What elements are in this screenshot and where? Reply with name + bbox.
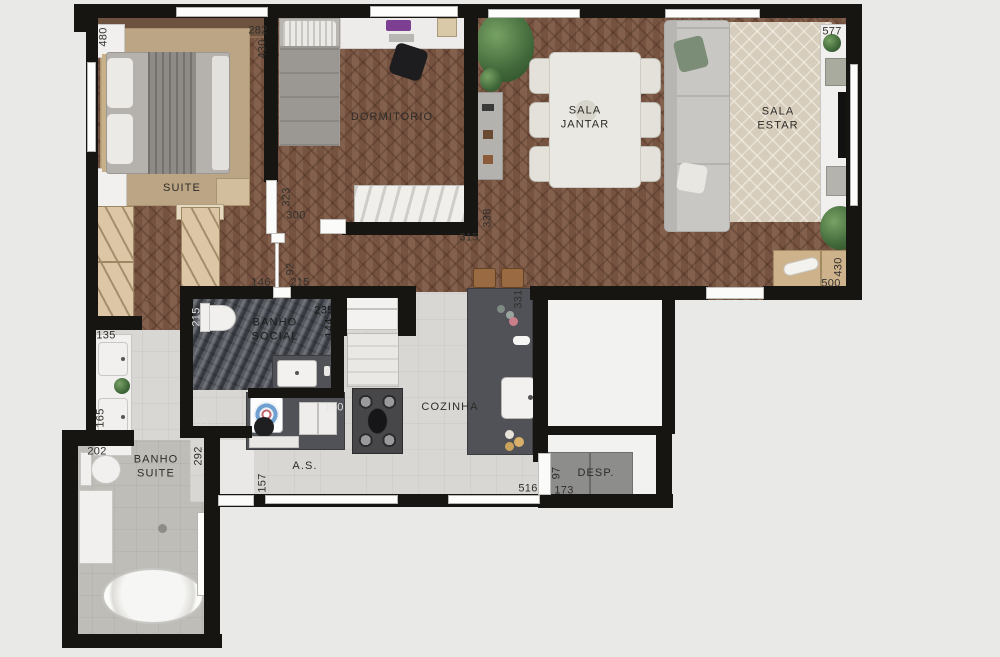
- suite-toilet-bowl: [91, 455, 121, 484]
- dim-estar-cab-b: 500: [821, 279, 840, 290]
- room-label-banho-suite: BANHO SUITE: [134, 453, 179, 481]
- dim-dorm-left-b: 300: [286, 211, 305, 222]
- dim-social-right-b: 144: [325, 318, 336, 337]
- sideboard-decor-1: [482, 104, 494, 111]
- wall-closet-stub: [90, 316, 142, 330]
- dim-hall-right: 215: [290, 278, 309, 289]
- dim-bsuite-right: 292: [194, 446, 205, 465]
- dim-social-right-a: 235: [314, 306, 333, 317]
- dim-suite-right-a: 282: [248, 26, 267, 37]
- closet-wardrobe-divider: [94, 261, 134, 263]
- social-toilet-bowl: [209, 305, 236, 331]
- dim-bsuite-top: 202: [87, 447, 106, 458]
- fruit-2: [514, 437, 524, 447]
- oven-tower: [347, 333, 399, 387]
- jantar-plant-small: [480, 68, 502, 92]
- suite-bath-bench: [79, 490, 113, 564]
- dim-as-tank: 150: [324, 403, 343, 414]
- corridor-door-frame: [271, 233, 285, 243]
- wall-sala-bottom-left: [530, 286, 708, 300]
- condiment-3: [509, 317, 518, 326]
- dim-vanity-a: 135: [96, 331, 115, 342]
- window-suite-left: [87, 62, 96, 152]
- wall-dorm-right: [464, 14, 478, 236]
- kitchen-counter: [467, 288, 533, 455]
- sofa-pillow-white: [676, 162, 708, 194]
- floor-plan: SUITE DORMITORIO SALA JANTAR SALA ESTAR …: [0, 0, 1000, 657]
- vanity-faucet-1: [121, 357, 125, 361]
- dim-kitchen-bottom: 516: [518, 484, 537, 495]
- wall-hall-desp: [543, 426, 663, 435]
- cooktop: [352, 388, 403, 454]
- sideboard-decor-3: [483, 155, 493, 164]
- social-tap-icon: [324, 366, 330, 376]
- wall-kitchen-top: [331, 286, 416, 298]
- dim-vanity-b: 165: [96, 408, 107, 427]
- dim-dorm-bottom: 315: [459, 233, 478, 244]
- desk-printer: [437, 18, 457, 37]
- wall-left-upper: [86, 14, 98, 326]
- suite-nightstand-bottom: [97, 168, 127, 208]
- dim-social-left: 215: [192, 307, 203, 326]
- suite-bed-throw: [148, 52, 196, 174]
- window-kitchen-bottom-2: [448, 495, 540, 504]
- suite-door: [266, 180, 277, 234]
- fruit-3: [505, 442, 514, 451]
- console-books: [825, 58, 847, 86]
- wall-bsuite-bottom: [62, 634, 222, 648]
- wall-kitchen-right: [533, 286, 548, 462]
- dim-suite-right-b: 430: [258, 39, 269, 58]
- dim-suite-left: 480: [99, 27, 110, 46]
- window-jantar-top: [488, 9, 580, 18]
- bar-stool-2: [501, 268, 524, 288]
- corridor-door-leaf: [275, 243, 279, 289]
- room-label-suite: SUITE: [163, 182, 201, 196]
- dim-dorm-right: 338: [483, 208, 494, 227]
- wall-social-laundry: [248, 388, 344, 398]
- laundry-shelf: [249, 436, 299, 448]
- room-label-banho-social: BANHO SOCIAL: [252, 316, 299, 344]
- shower-drain-icon: [158, 524, 167, 533]
- despensa-door: [538, 453, 551, 495]
- dorm-blanket: [280, 46, 339, 146]
- fruit-1: [505, 430, 514, 439]
- room-label-dormitorio: DORMITORIO: [351, 111, 433, 125]
- dim-dorm-left-a: 323: [282, 187, 293, 206]
- dim-desp-door-l: 173: [554, 486, 573, 497]
- laundry-tank-line: [317, 402, 319, 435]
- vanity-plant: [114, 378, 130, 394]
- dim-hall-door: 92: [286, 263, 297, 276]
- refrigerator-door-line: [346, 308, 398, 310]
- suite-bathtub: [102, 568, 204, 624]
- room-label-cozinha: COZINHA: [421, 401, 478, 415]
- social-door: [273, 287, 291, 298]
- suite-dresser: [216, 178, 250, 206]
- entrance-door: [706, 287, 764, 299]
- wall-bsuite-top: [62, 430, 134, 446]
- console-basket: [826, 166, 848, 196]
- window-dorm-top: [370, 6, 458, 17]
- suite-pillow-1: [107, 58, 133, 108]
- desk-pad: [389, 34, 414, 42]
- wall-bsuite-right: [204, 430, 220, 648]
- faucet-icon: [513, 336, 530, 345]
- dim-hall-left: 146: [251, 278, 270, 289]
- dim-kitchen-right: 331: [514, 289, 525, 308]
- window-suite-top: [176, 7, 268, 17]
- dorm-door: [320, 219, 346, 234]
- wall-dorm-bottom: [342, 222, 478, 235]
- wall-hall-right: [662, 296, 675, 434]
- window-kitchen-bottom-1: [265, 495, 398, 504]
- room-label-as: A.S.: [292, 460, 317, 474]
- room-label-despensa: DESP.: [577, 467, 614, 481]
- dim-estar-cab-r: 430: [834, 257, 845, 276]
- sideboard-decor-2: [483, 130, 493, 139]
- dorm-wardrobe: [354, 185, 467, 223]
- window-estar-top: [665, 9, 760, 18]
- laptop-icon: [386, 20, 411, 31]
- laundry-round-sink: [254, 417, 274, 437]
- dim-as-left: 157: [258, 473, 269, 492]
- room-label-sala-jantar: SALA JANTAR: [561, 104, 610, 132]
- closet-wardrobe-right: [181, 207, 220, 289]
- suite-pillow-2: [107, 114, 133, 164]
- dim-social-shower: 85: [196, 418, 209, 429]
- dim-estar-top: 577: [822, 27, 841, 38]
- service-door: [218, 495, 254, 506]
- bar-stool-1: [473, 268, 496, 288]
- wall-bsuite-left: [62, 430, 78, 648]
- room-label-sala-estar: SALA ESTAR: [757, 105, 798, 133]
- vanity-faucet-2: [121, 415, 125, 419]
- suite-bed-runner: [212, 56, 229, 170]
- hall-floor: [545, 298, 667, 430]
- condiment-1: [497, 305, 505, 313]
- dorm-pillow: [283, 21, 336, 48]
- window-estar-right: [850, 64, 858, 206]
- wall-left-mid: [86, 326, 96, 446]
- dim-desp-door-w: 97: [552, 467, 563, 480]
- tv-icon: [838, 92, 846, 158]
- social-sink-faucet: [295, 371, 299, 375]
